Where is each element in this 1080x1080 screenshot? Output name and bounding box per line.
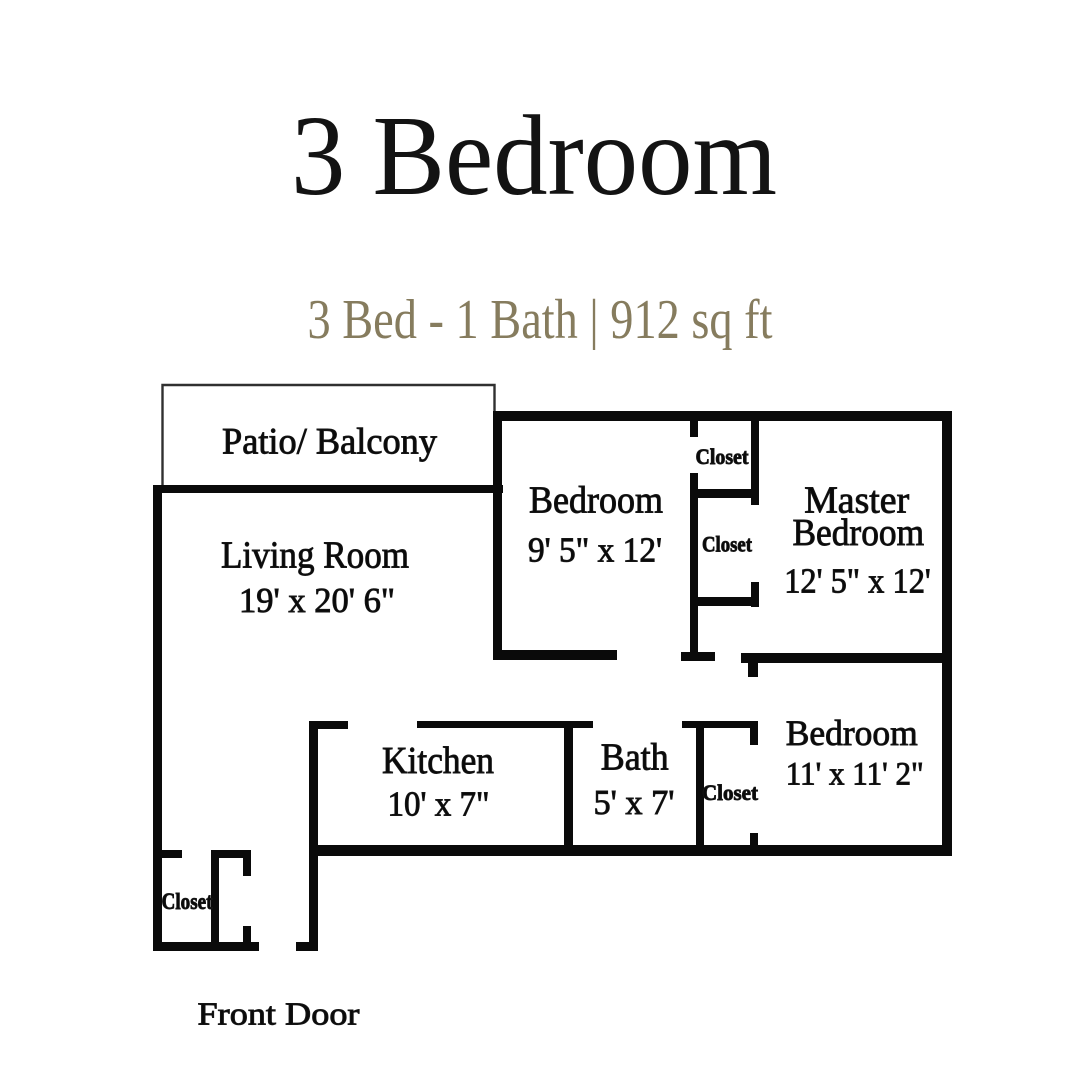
svg-text:11' x 11' 2": 11' x 11' 2"	[786, 757, 924, 793]
svg-text:10' x 7": 10' x 7"	[388, 785, 490, 824]
svg-text:5' x 7': 5' x 7'	[594, 783, 675, 822]
svg-text:Closet: Closet	[702, 532, 753, 557]
svg-text:3 Bed - 1 Bath | 912 sq ft: 3 Bed - 1 Bath | 912 sq ft	[308, 289, 773, 351]
svg-text:Patio/ Balcony: Patio/ Balcony	[222, 422, 437, 463]
svg-text:12' 5" x 12': 12' 5" x 12'	[784, 562, 931, 601]
svg-text:Bedroom: Bedroom	[786, 713, 918, 753]
svg-text:Closet: Closet	[162, 889, 213, 914]
svg-text:3 Bedroom: 3 Bedroom	[291, 92, 777, 219]
svg-text:Bath: Bath	[601, 737, 669, 779]
svg-text:Closet: Closet	[702, 780, 759, 805]
svg-text:19' x 20' 6": 19' x 20' 6"	[239, 581, 395, 620]
svg-text:9' 5" x 12': 9' 5" x 12'	[528, 531, 662, 570]
svg-text:Kitchen: Kitchen	[382, 740, 494, 782]
svg-text:Bedroom: Bedroom	[529, 480, 663, 522]
svg-text:Front Door: Front Door	[198, 996, 360, 1032]
svg-text:Living Room: Living Room	[221, 535, 409, 577]
svg-text:Closet: Closet	[696, 444, 750, 469]
svg-text:Bedroom: Bedroom	[792, 512, 924, 554]
